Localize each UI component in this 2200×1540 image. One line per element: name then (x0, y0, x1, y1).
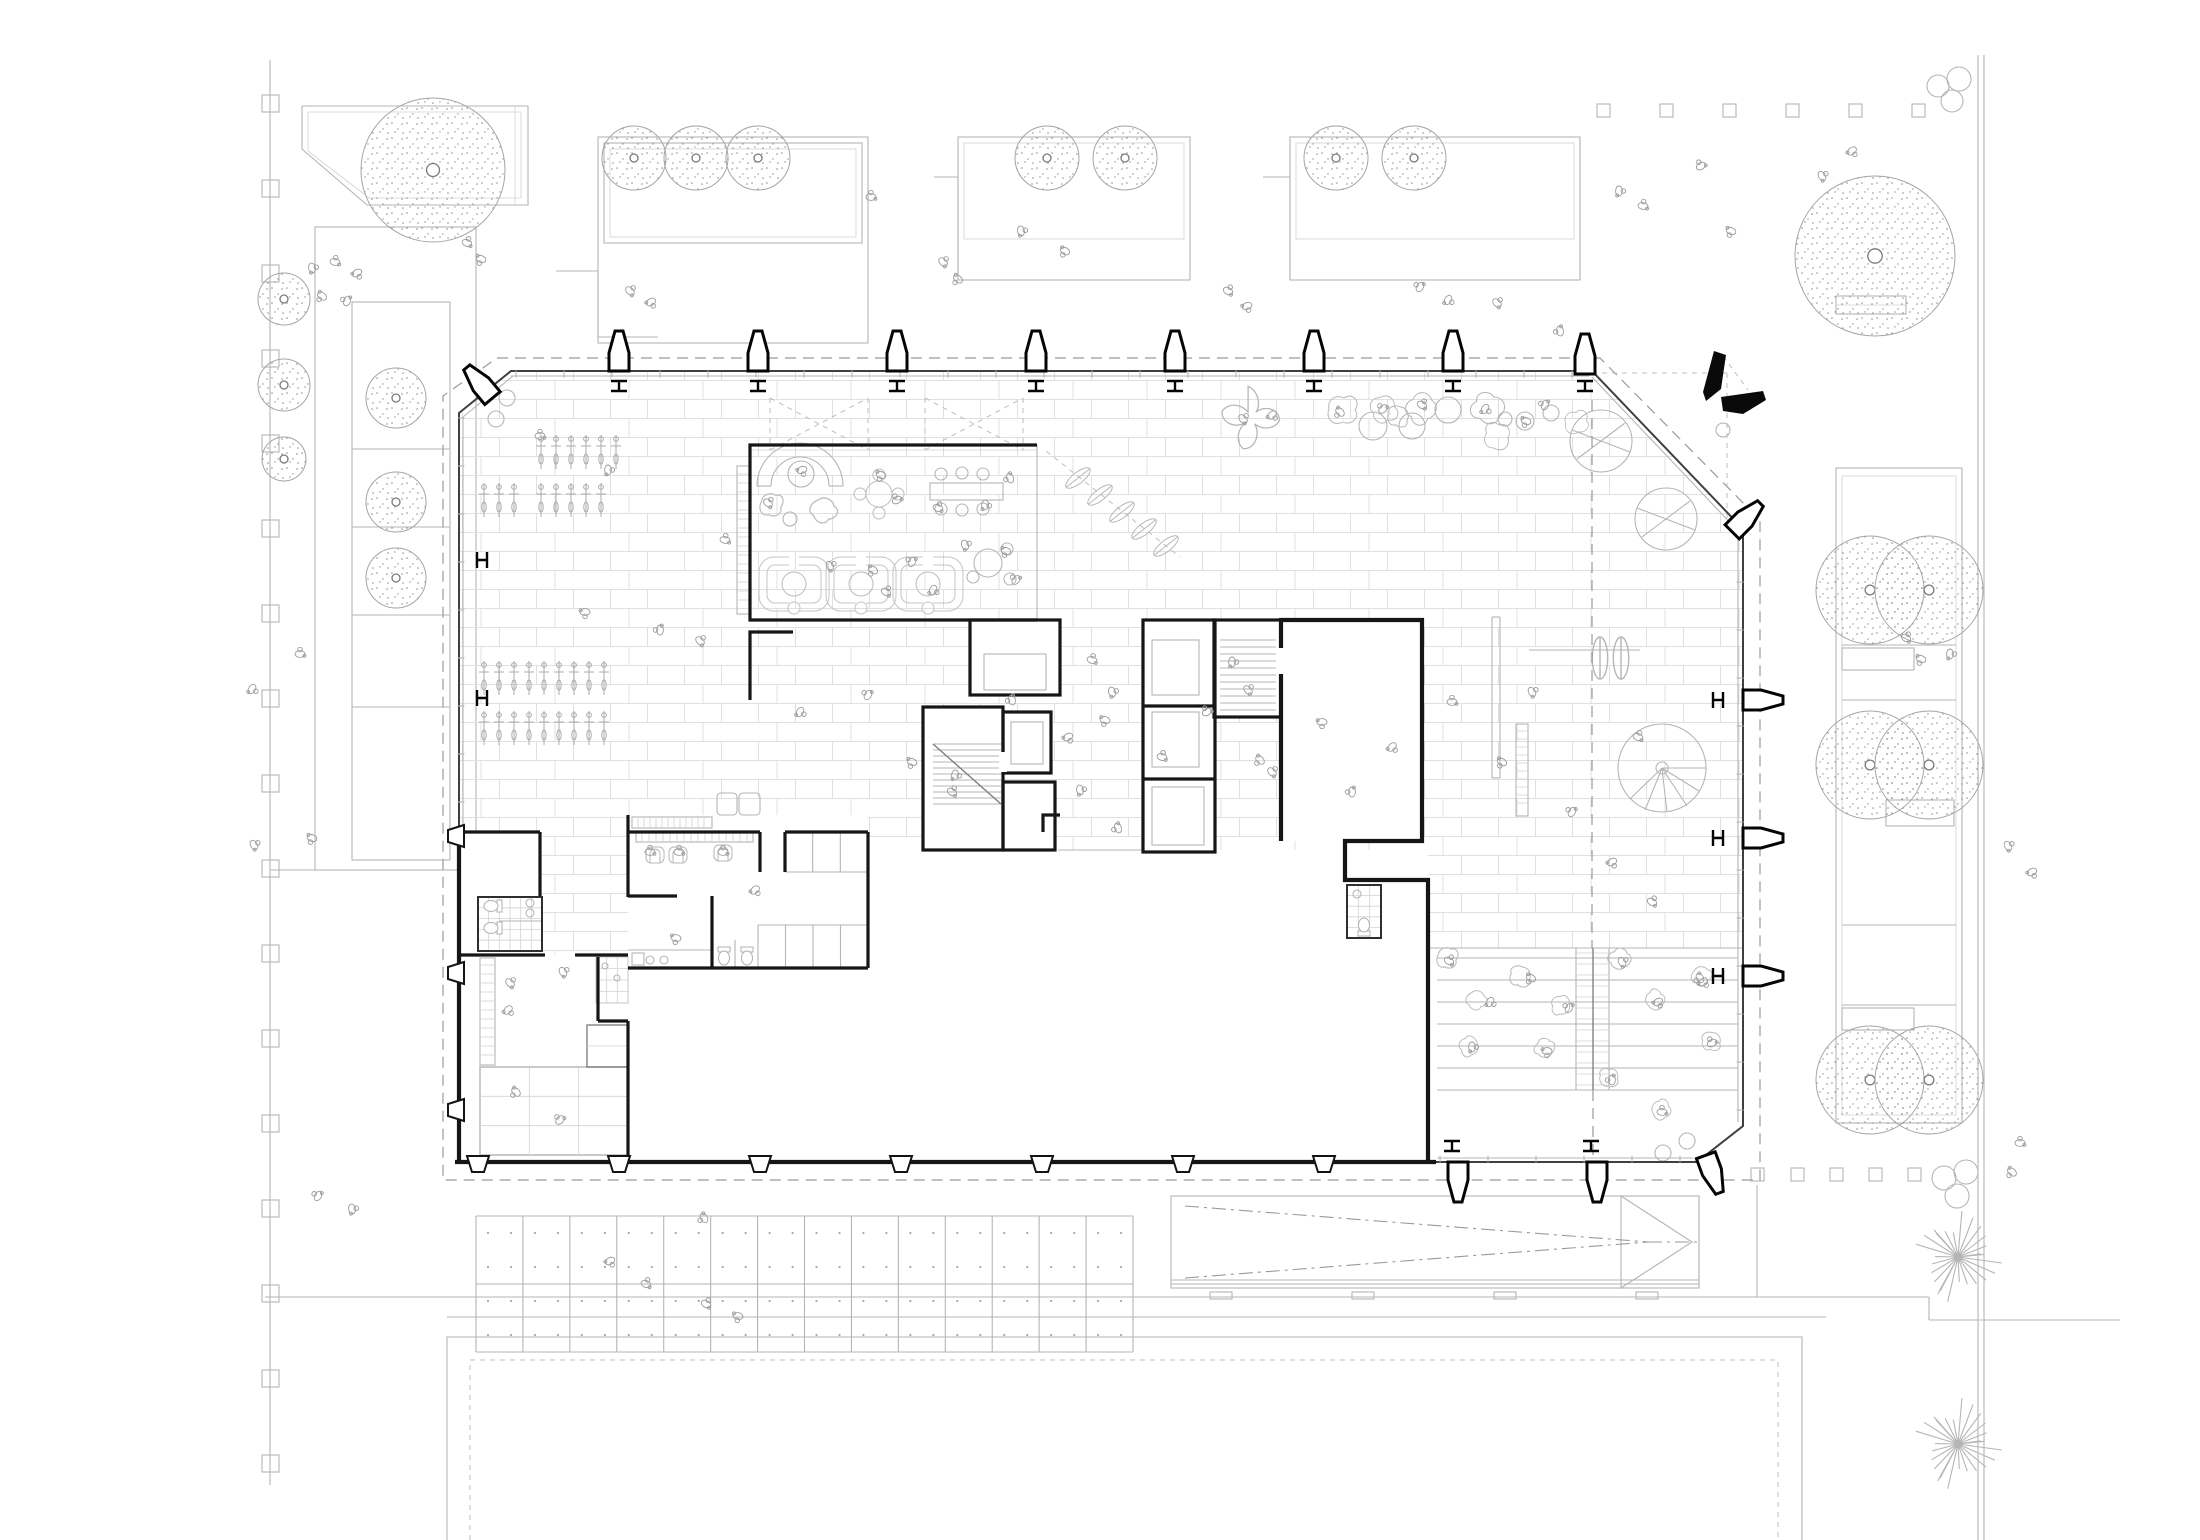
person-symbol (1845, 145, 1860, 160)
person-symbol (1017, 225, 1029, 237)
bullet-symbol (887, 331, 907, 371)
bullet-symbol (1443, 331, 1463, 371)
person-symbol (640, 1276, 654, 1289)
person-symbol (2003, 1166, 2018, 1181)
person-symbol (1693, 157, 1707, 171)
person-symbol (249, 837, 263, 851)
wc-symbol (1358, 918, 1370, 936)
person-symbol (1817, 168, 1831, 182)
person-symbol (1442, 294, 1456, 308)
person-symbol (246, 683, 260, 697)
wc-symbol (484, 900, 502, 912)
bullet-symbol (609, 331, 629, 371)
notch-symbol (448, 962, 464, 984)
person-symbol (1412, 279, 1426, 293)
notch-symbol (1172, 1156, 1194, 1172)
person-symbol (1947, 649, 1957, 660)
person-symbol (624, 283, 639, 298)
floor-plan-drawing (0, 0, 2200, 1540)
bullet-symbol (1448, 1162, 1468, 1202)
person-symbol (2003, 838, 2017, 852)
person-symbol (695, 1211, 709, 1225)
notch-symbol (1313, 1156, 1335, 1172)
wc-symbol (718, 947, 730, 965)
person-symbol (1913, 654, 1927, 667)
person-symbol (2025, 867, 2039, 881)
person-symbol (350, 268, 364, 282)
person-symbol (1240, 301, 1254, 314)
person-symbol (461, 235, 475, 248)
notch-symbol (608, 1156, 630, 1172)
notch-symbol (467, 1156, 489, 1172)
bullet-symbol (1575, 334, 1595, 374)
bullet-symbol (1304, 331, 1324, 371)
person-symbol (304, 833, 318, 846)
person-symbol (308, 262, 320, 274)
bullet-symbol (1743, 690, 1783, 710)
bullet-symbol (1743, 966, 1783, 986)
person-symbol (644, 297, 658, 311)
bullet-symbol (1725, 496, 1767, 538)
bullet-symbol (1165, 331, 1185, 371)
bullet-symbol (1587, 1162, 1607, 1202)
person-symbol (339, 293, 352, 307)
wc-symbol (484, 922, 502, 934)
notch-symbol (890, 1156, 912, 1172)
bullet-symbol (1026, 331, 1046, 371)
person-symbol (700, 1296, 714, 1310)
person-symbol (310, 1188, 324, 1202)
person-symbol (329, 255, 341, 267)
bullet-symbol (459, 361, 500, 404)
notch-symbol (448, 1099, 464, 1121)
person-symbol (295, 647, 306, 657)
person-symbol (473, 254, 487, 267)
notch-symbol (749, 1156, 771, 1172)
person-symbol (1637, 199, 1649, 211)
person-symbol (1057, 245, 1071, 259)
bullet-symbol (748, 331, 768, 371)
floor-plan-stage (0, 0, 2200, 1540)
person-symbol (937, 254, 952, 269)
person-symbol (1491, 295, 1506, 310)
person-symbol (1552, 325, 1564, 337)
person-symbol (1616, 186, 1626, 197)
bullet-symbol (1743, 828, 1783, 848)
wc-symbol (741, 947, 753, 965)
person-symbol (2015, 1136, 2026, 1146)
person-symbol (1723, 226, 1737, 239)
notch-symbol (448, 825, 464, 847)
notch-symbol (1031, 1156, 1053, 1172)
person-symbol (348, 1203, 360, 1215)
person-symbol (1222, 283, 1236, 297)
